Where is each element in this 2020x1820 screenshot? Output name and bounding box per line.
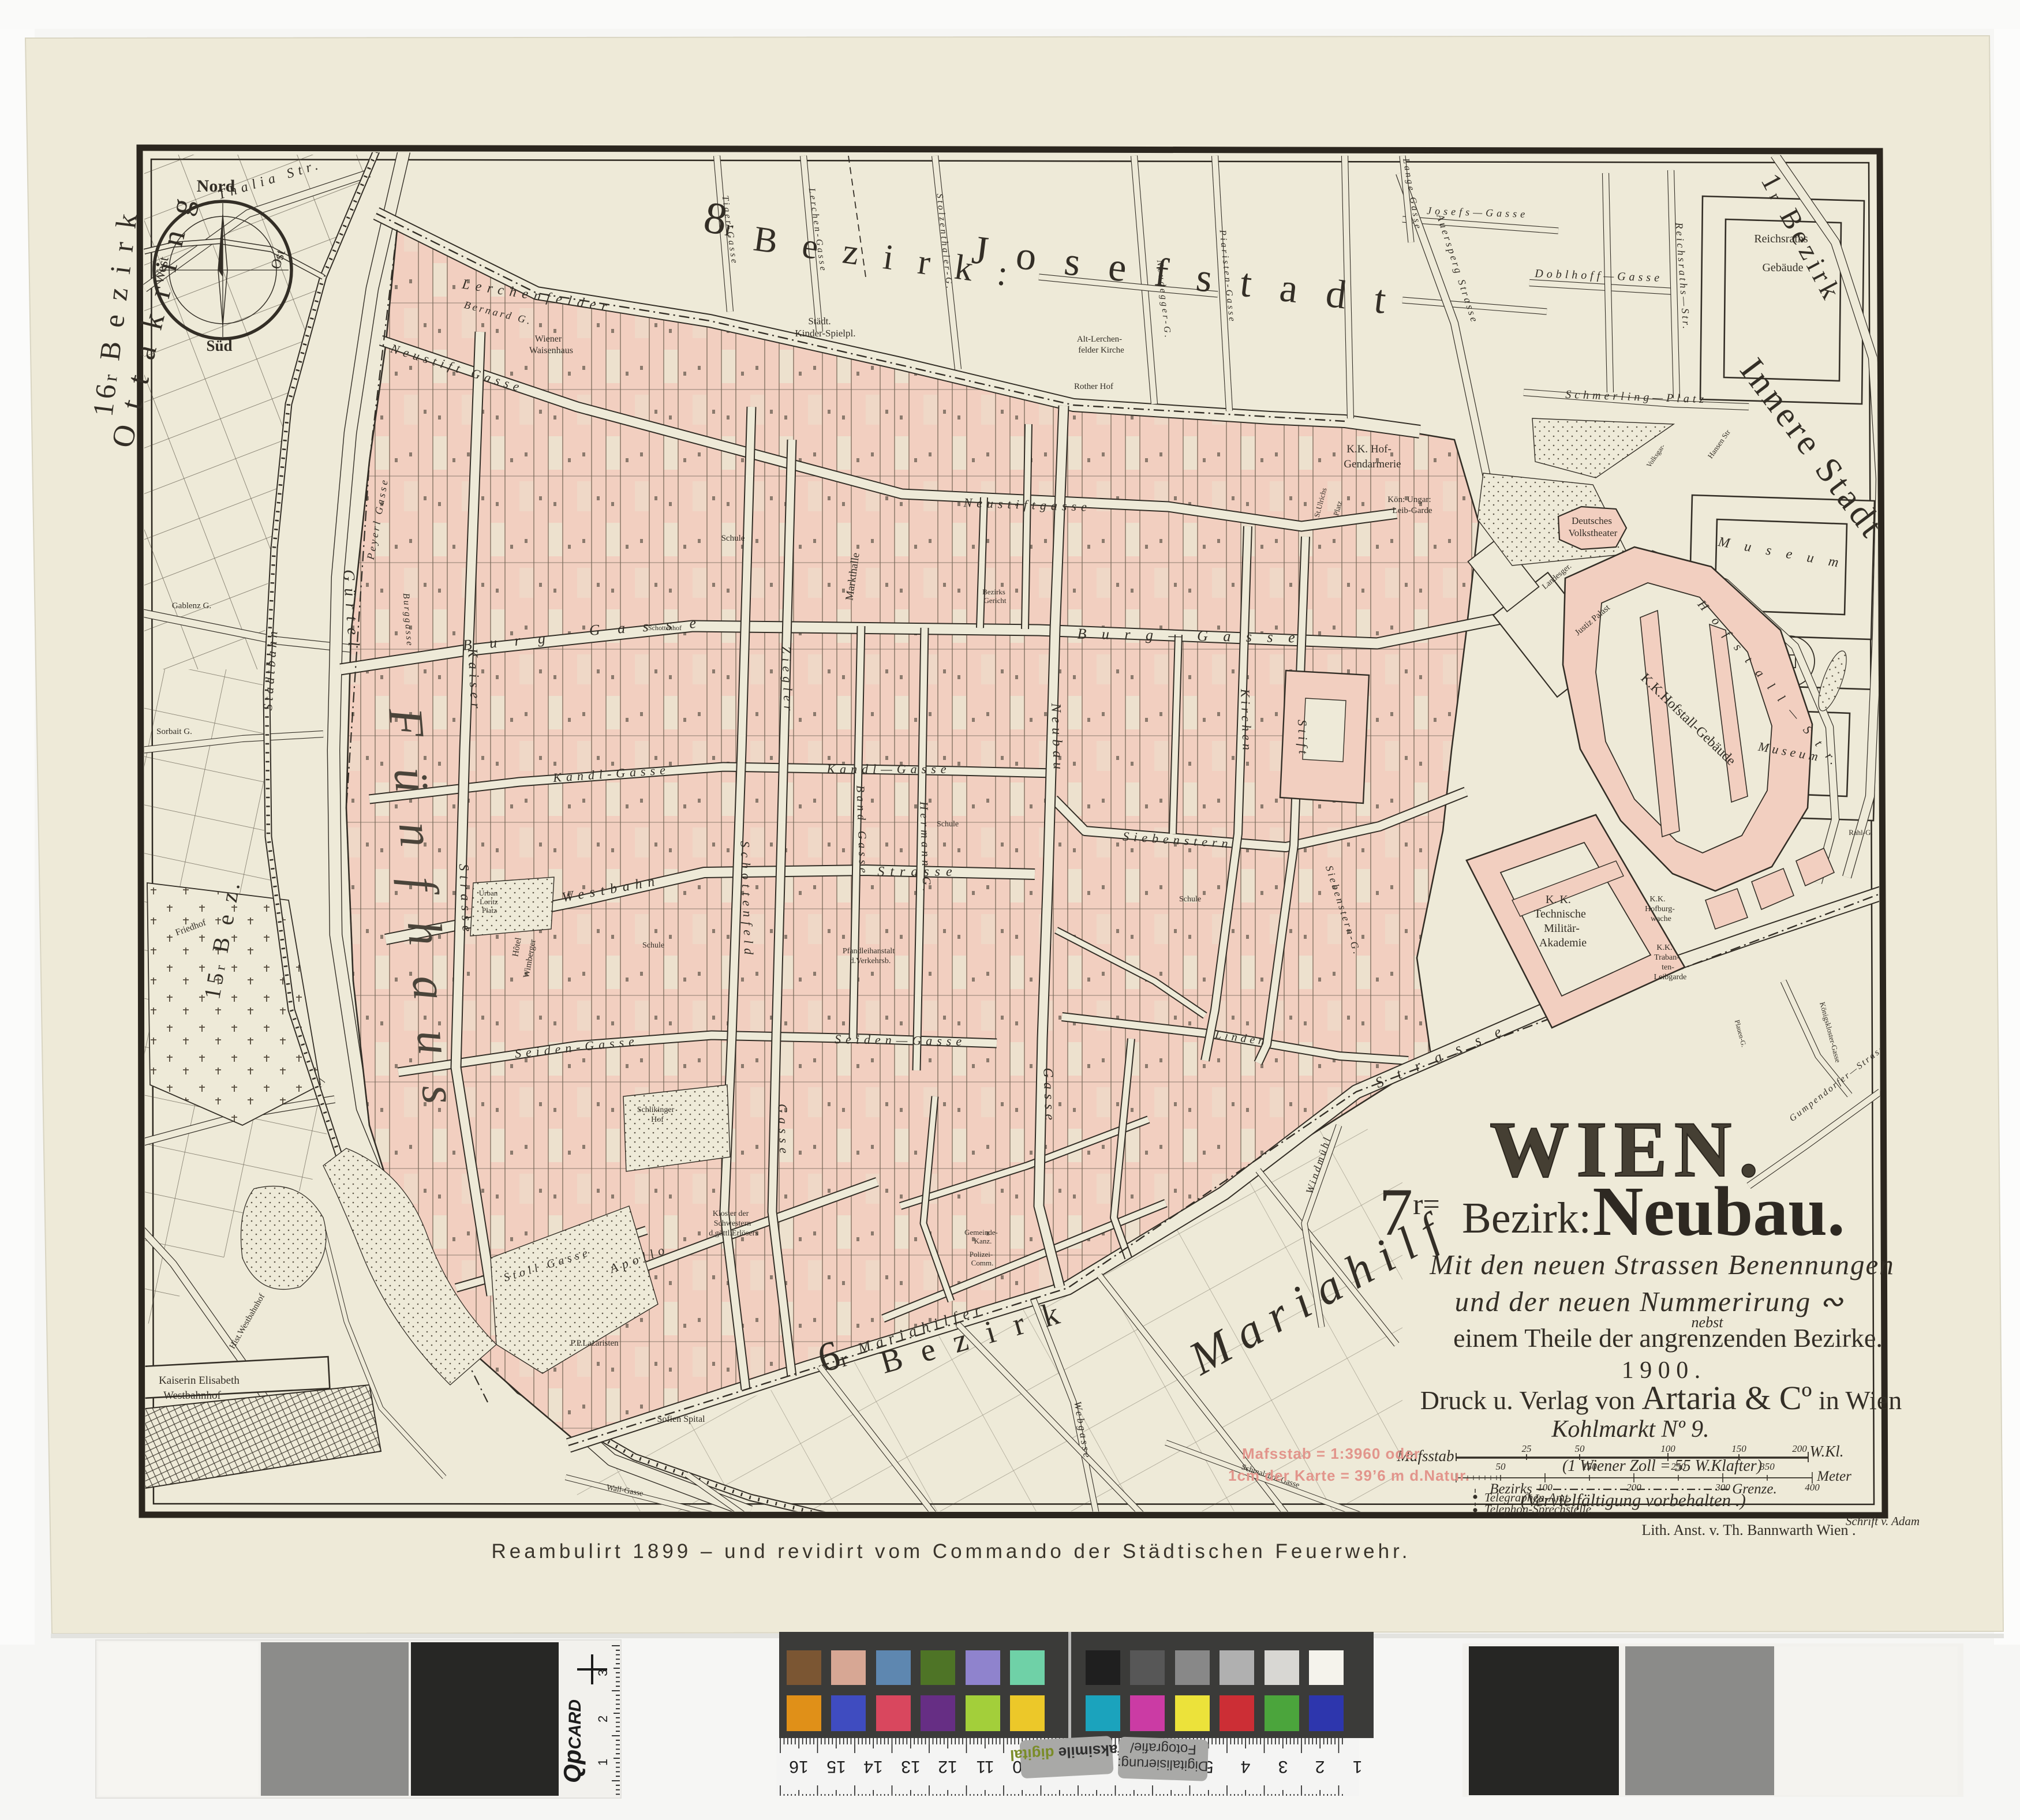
svg-text:Schwestern: Schwestern xyxy=(714,1219,751,1228)
svg-text:Leib-Garde: Leib-Garde xyxy=(1392,506,1432,515)
svg-text:d.göttl.Erlösers: d.göttl.Erlösers xyxy=(709,1229,758,1238)
svg-text:Alt-Lerchen-: Alt-Lerchen- xyxy=(1077,335,1122,344)
svg-text:Gendarmerie: Gendarmerie xyxy=(1344,458,1401,470)
svg-text:Wiener: Wiener xyxy=(535,334,562,344)
svg-text:Schule: Schule xyxy=(642,941,664,950)
svg-text:4: 4 xyxy=(1241,1757,1251,1776)
svg-text:Schottenhof: Schottenhof xyxy=(648,624,682,632)
svg-text:P.P.Lazaristen: P.P.Lazaristen xyxy=(570,1339,619,1348)
svg-text:Stift: Stift xyxy=(1295,720,1311,758)
svg-text:felder Kirche: felder Kirche xyxy=(1078,346,1124,355)
svg-text:Gericht: Gericht xyxy=(984,596,1007,605)
svg-text:Seiden—Gasse: Seiden—Gasse xyxy=(835,1032,966,1048)
svg-text:Strasse: Strasse xyxy=(877,864,957,879)
svg-text:Mit den neuen Strassen Benennu: Mit den neuen Strassen Benennungen xyxy=(1429,1249,1895,1280)
svg-text:wache: wache xyxy=(1651,915,1671,923)
svg-text:K.K. Hof-: K.K. Hof- xyxy=(1346,443,1391,455)
svg-text:Kandl—Gasse: Kandl—Gasse xyxy=(826,762,951,776)
svg-text:Reichsraths: Reichsraths xyxy=(1754,233,1808,245)
svg-text:Schule: Schule xyxy=(937,820,959,829)
svg-text:Traban-: Traban- xyxy=(1654,953,1679,962)
svg-text:Kanz.: Kanz. xyxy=(974,1237,992,1245)
svg-text:50: 50 xyxy=(1496,1461,1506,1472)
svg-text:K. K.: K. K. xyxy=(1546,893,1571,906)
svg-text:Digitalisierung:: Digitalisierung: xyxy=(1117,1755,1208,1773)
svg-text:Hof: Hof xyxy=(651,1115,664,1124)
svg-text:150: 150 xyxy=(1731,1443,1746,1454)
svg-text:Loritz: Loritz xyxy=(480,897,498,906)
svg-text:K.K.: K.K. xyxy=(1656,943,1672,952)
svg-text:Bezirks: Bezirks xyxy=(982,587,1005,596)
svg-text:200: 200 xyxy=(1792,1443,1807,1454)
svg-text:Kloster der: Kloster der xyxy=(713,1209,749,1218)
svg-text:Militär-: Militär- xyxy=(1544,922,1580,935)
svg-text:Rother Hof: Rother Hof xyxy=(1074,382,1113,391)
svg-text:13: 13 xyxy=(901,1757,920,1776)
svg-text:Meter: Meter xyxy=(1816,1469,1851,1484)
svg-text:und der neuen Nummerirung ∾: und der neuen Nummerirung ∾ xyxy=(1455,1286,1845,1317)
svg-text:150: 150 xyxy=(1582,1461,1597,1472)
svg-text:Urban: Urban xyxy=(479,889,498,897)
svg-text:Ziegler: Ziegler xyxy=(779,646,796,716)
svg-text:Leibgarde: Leibgarde xyxy=(1654,973,1687,982)
svg-text:einem Theile der angrenzenden: einem Theile der angrenzenden Bezirke. xyxy=(1453,1323,1883,1353)
svg-text:Schule: Schule xyxy=(1179,895,1201,904)
svg-text:Neubau: Neubau xyxy=(1048,702,1065,774)
svg-text:3: 3 xyxy=(1278,1757,1288,1776)
svg-text:Schlikinger: Schlikinger xyxy=(637,1106,675,1114)
svg-text:Technische: Technische xyxy=(1534,908,1586,920)
svg-text:Schule: Schule xyxy=(721,534,745,543)
svg-text:Gablenz G.: Gablenz G. xyxy=(172,601,211,611)
svg-text:Mafsstab = 1:3960 oder: Mafsstab = 1:3960 oder xyxy=(1242,1445,1420,1462)
svg-text:Pfandleihanstalt: Pfandleihanstalt xyxy=(843,947,895,956)
svg-text:Hofburg-: Hofburg- xyxy=(1645,905,1675,913)
svg-text:Gemeinde-: Gemeinde- xyxy=(964,1228,998,1237)
svg-text:Platz: Platz xyxy=(482,906,497,915)
svg-text:15: 15 xyxy=(826,1757,846,1776)
svg-text:Bezirk:: Bezirk: xyxy=(1462,1194,1591,1242)
svg-text:Waisenhaus: Waisenhaus xyxy=(529,346,573,355)
svg-text:Sofien Spital: Sofien Spital xyxy=(657,1414,705,1424)
svg-text:25: 25 xyxy=(1522,1443,1532,1454)
svg-text:16: 16 xyxy=(789,1757,808,1776)
svg-text:Reambulirt 1899 – und revi: Reambulirt 1899 – und revidirt vom Comma… xyxy=(491,1540,1411,1563)
svg-text:Gebäude: Gebäude xyxy=(1762,261,1803,274)
svg-text:(Vervielfältigung vorbehalten: (Vervielfältigung vorbehalten .) xyxy=(1521,1490,1746,1510)
svg-text:Fotografie/: Fotografie/ xyxy=(1129,1739,1196,1757)
svg-text:100: 100 xyxy=(1660,1443,1675,1454)
svg-text:Kinder-Spielpl.: Kinder-Spielpl. xyxy=(795,328,856,339)
svg-text:2: 2 xyxy=(596,1716,610,1722)
svg-text:Kohlmarkt Nº 9.: Kohlmarkt Nº 9. xyxy=(1551,1416,1709,1443)
svg-text:Gasse: Gasse xyxy=(1040,1068,1057,1125)
svg-text:Schrift v. Adam: Schrift v. Adam xyxy=(1846,1514,1920,1528)
svg-text:Comm.: Comm. xyxy=(971,1259,994,1267)
svg-text:14: 14 xyxy=(863,1757,882,1776)
svg-text:Sorbait G.: Sorbait G. xyxy=(156,727,192,736)
svg-text:K.K.: K.K. xyxy=(1649,895,1665,904)
svg-text:2: 2 xyxy=(1315,1757,1325,1776)
svg-text:Volkstheater: Volkstheater xyxy=(1569,527,1618,538)
svg-text:50: 50 xyxy=(1575,1443,1585,1454)
svg-text:Akademie: Akademie xyxy=(1539,937,1587,949)
svg-text:Deutsches: Deutsches xyxy=(1572,515,1612,526)
svg-text:W.Kl.: W.Kl. xyxy=(1809,1443,1843,1460)
svg-text:ten-: ten- xyxy=(1662,963,1674,972)
svg-text:Rahl-G.: Rahl-G. xyxy=(1849,828,1873,837)
svg-text:3: 3 xyxy=(596,1669,610,1676)
svg-text:Gasse: Gasse xyxy=(775,1103,791,1158)
svg-text:Lith. Anst. v. Th. Bannwarth: Lith. Anst. v. Th. Bannwarth Wien . xyxy=(1641,1522,1856,1538)
svg-text:Kaiserin Elisabeth: Kaiserin Elisabeth xyxy=(159,1375,240,1387)
svg-text:Westbahnhof: Westbahnhof xyxy=(163,1390,221,1402)
svg-text:Süd: Süd xyxy=(206,337,232,354)
svg-text:350: 350 xyxy=(1759,1461,1775,1472)
svg-text:1: 1 xyxy=(1353,1757,1363,1776)
svg-text:Neubau.: Neubau. xyxy=(1592,1173,1845,1250)
svg-text:12: 12 xyxy=(938,1757,957,1776)
svg-text:1: 1 xyxy=(596,1759,610,1766)
svg-text:Städt.: Städt. xyxy=(808,316,831,327)
svg-text:11: 11 xyxy=(976,1757,994,1776)
svg-text:1cm der Karte = 39’6 m d.Natur: 1cm der Karte = 39’6 m d.Natur. xyxy=(1228,1467,1470,1484)
svg-text:Polizei-: Polizei- xyxy=(970,1250,993,1259)
svg-text:Kirchen: Kirchen xyxy=(1238,688,1255,754)
svg-text:Kön: Ungar:: Kön: Ungar: xyxy=(1387,495,1431,504)
svg-text:250: 250 xyxy=(1671,1461,1686,1472)
svg-text:d.Verkehrsb.: d.Verkehrsb. xyxy=(850,957,891,965)
